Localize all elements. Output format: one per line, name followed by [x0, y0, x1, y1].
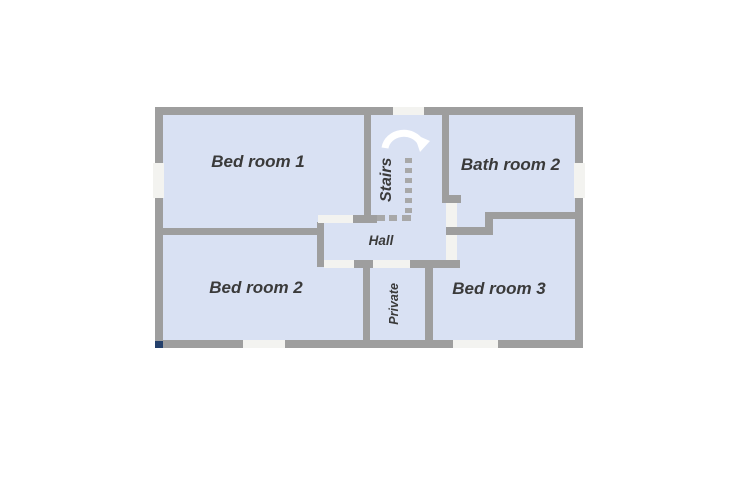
stairs-left-wall-foot [353, 215, 377, 223]
bathroom-bottom-wall [485, 212, 575, 219]
hall-to-bedroom2-door-opening [324, 260, 354, 268]
room-label-bathroom2: Bath room 2 [443, 156, 578, 175]
bathroom-left-wall-foot [442, 195, 461, 203]
room-label-bedroom2: Bed room 2 [156, 279, 356, 298]
hall-to-bathroom-door-opening [446, 203, 457, 227]
room-label-bedroom1: Bed room 1 [158, 153, 358, 172]
floor-plan: Bed room 1 Bath room 2 Bed room 2 Bed ro… [0, 0, 750, 500]
room-label-bedroom3: Bed room 3 [429, 280, 569, 299]
hall-top-door-opening [318, 215, 353, 223]
private-left-wall [363, 264, 370, 340]
bedroom2-bottom-opening [243, 340, 285, 348]
hall-to-bedroom3-door-opening [446, 235, 457, 260]
private-right-wall [425, 264, 433, 340]
hall-bottom-right-wall [410, 260, 460, 268]
bedroom3-bottom-opening [453, 340, 498, 348]
corner-speck [155, 341, 163, 348]
room-label-private: Private [388, 269, 402, 339]
hall-left-wall [317, 222, 324, 267]
room-label-stairs: Stairs [378, 140, 396, 220]
room-label-hall: Hall [341, 234, 421, 249]
private-door-opening [373, 260, 410, 268]
bedroom-divider-wall [163, 228, 324, 235]
bathroom-left-wall [442, 115, 449, 195]
stairs-left-wall [364, 115, 371, 216]
stairs-top-opening [393, 107, 424, 115]
